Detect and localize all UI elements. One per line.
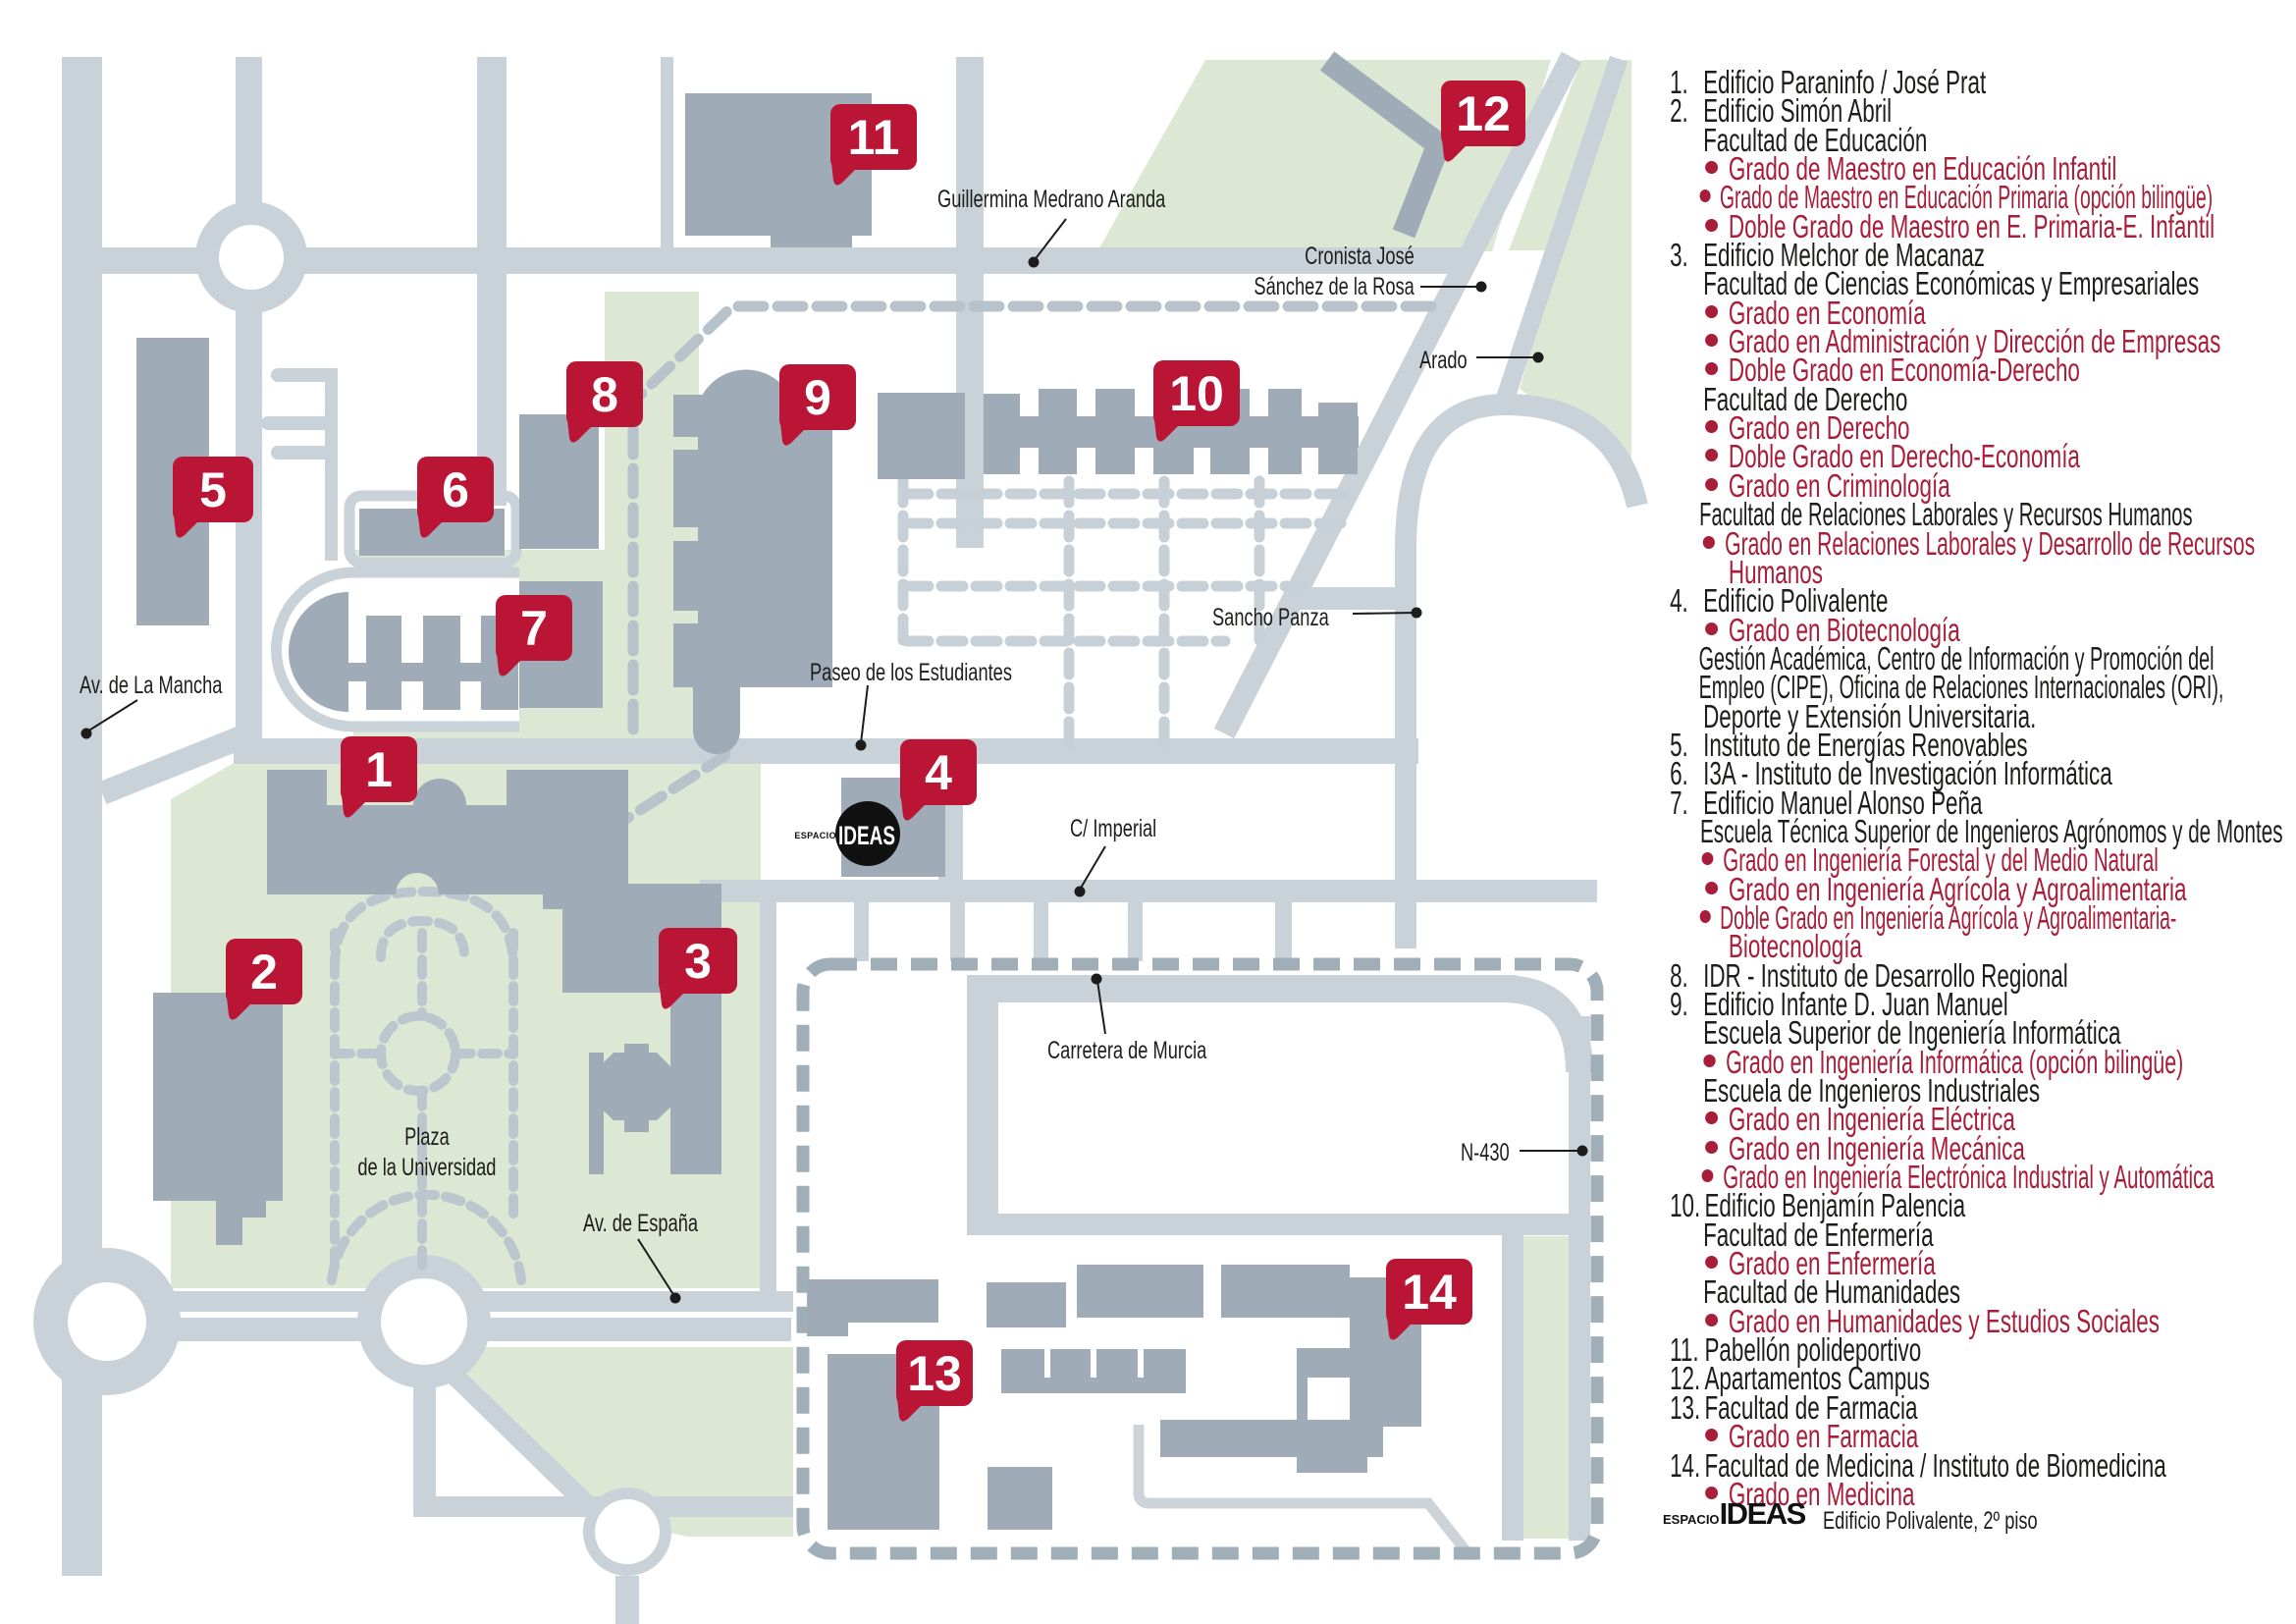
svg-text:13: 13	[907, 1346, 962, 1401]
svg-text:IDEAS: IDEAS	[838, 821, 895, 850]
svg-text:1: 1	[365, 742, 393, 797]
svg-text:2: 2	[250, 945, 278, 1000]
svg-text:6: 6	[442, 462, 469, 517]
svg-text:8: 8	[591, 367, 618, 422]
svg-text:4: 4	[925, 745, 952, 800]
svg-text:10: 10	[1169, 366, 1224, 421]
svg-text:3: 3	[684, 934, 712, 989]
svg-text:5: 5	[199, 462, 227, 517]
svg-text:9: 9	[804, 370, 831, 425]
svg-text:7: 7	[520, 601, 548, 656]
svg-text:11: 11	[848, 110, 900, 165]
svg-text:12: 12	[1456, 86, 1511, 141]
svg-text:ESPACIO: ESPACIO	[794, 831, 836, 840]
svg-text:14: 14	[1402, 1265, 1457, 1320]
